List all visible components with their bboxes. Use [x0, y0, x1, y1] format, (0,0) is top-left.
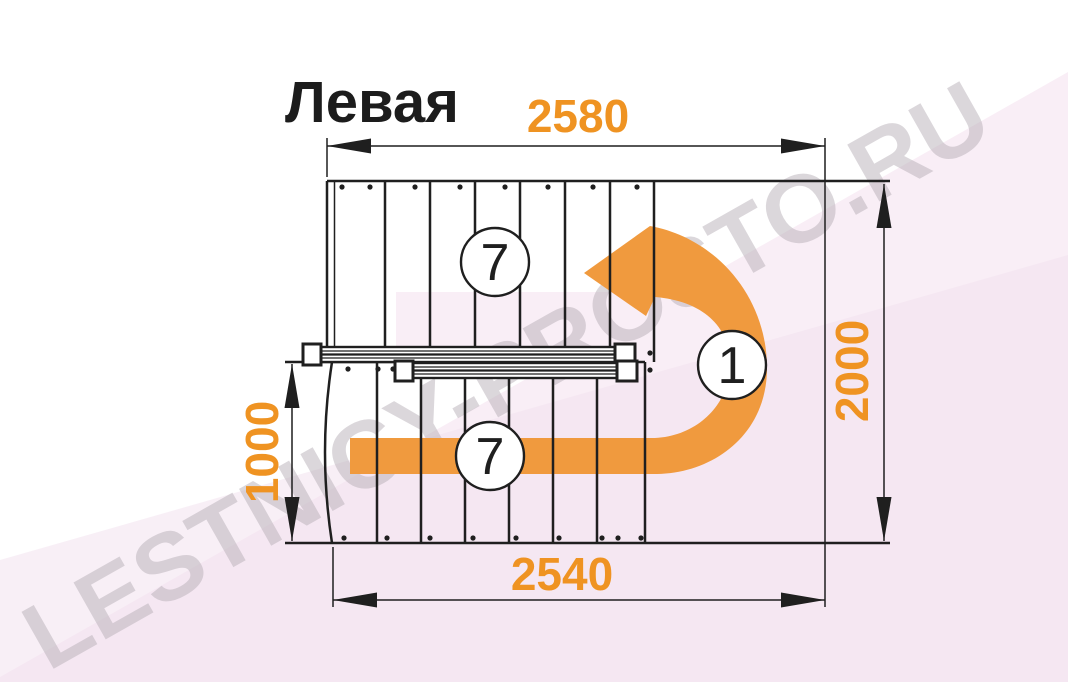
dim-label-bottom-width: 2540 [511, 548, 613, 600]
upper-steps-badge-label: 7 [481, 234, 510, 292]
beam-cap [617, 361, 637, 381]
dim-label-top-width: 2580 [527, 90, 629, 142]
beam-cap [395, 361, 413, 381]
lower-steps-badge-label: 7 [476, 428, 505, 486]
plan-title: Левая [285, 70, 459, 135]
landing-badge-label: 1 [718, 337, 747, 395]
staircase-plan-page: LESTNICY-PROSTO.RU [0, 0, 1068, 682]
dim-label-right-height: 2000 [826, 320, 878, 422]
beam-cap [303, 344, 321, 365]
staircase-plan-svg: LESTNICY-PROSTO.RU [0, 0, 1068, 682]
dim-label-left-height: 1000 [236, 401, 288, 503]
